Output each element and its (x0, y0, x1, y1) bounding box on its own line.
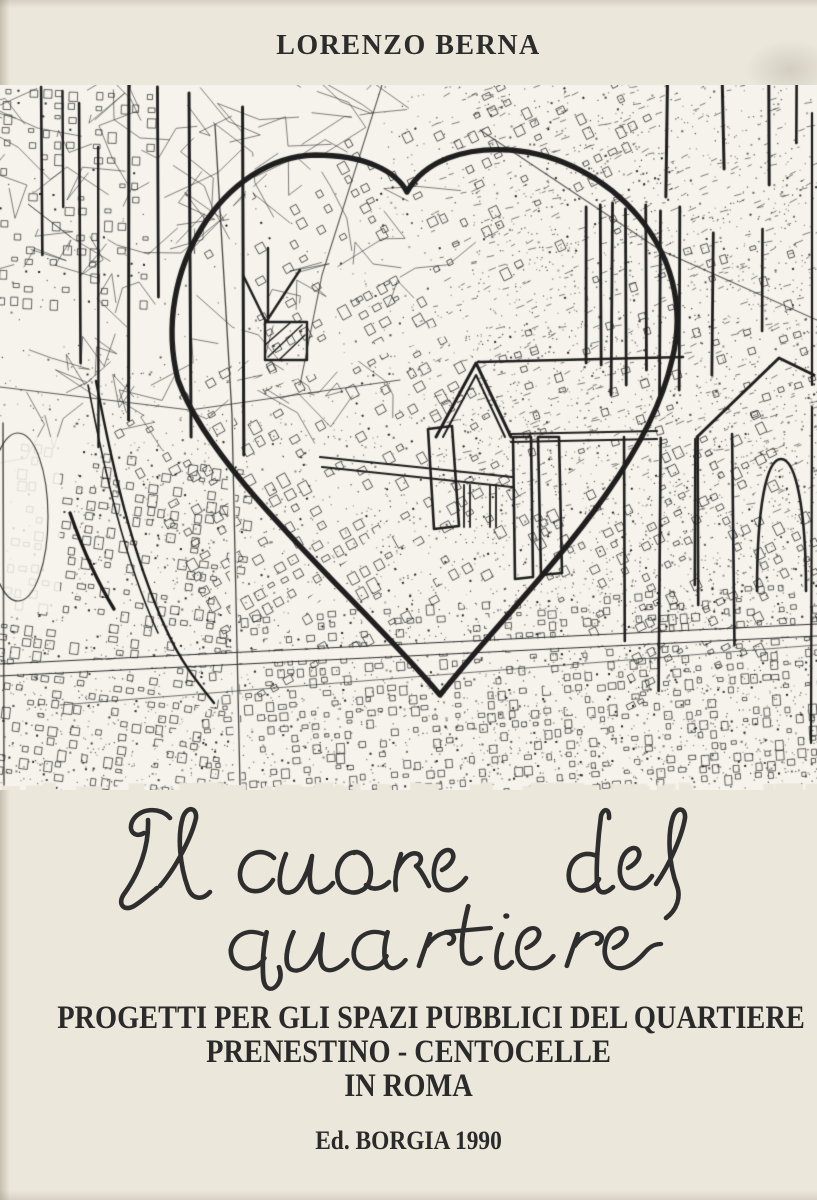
subtitle-line-3: IN ROMA (57, 1069, 760, 1103)
book-cover: LORENZO BERNA Il cuore del quartiere PRO… (0, 0, 817, 1200)
page-edge-shading-bottom (0, 1190, 817, 1200)
handwritten-title-text-line1: Il cuore del (0, 0, 1, 1)
publisher-line: Ed. BORGIA 1990 (41, 1126, 776, 1156)
author-name: LORENZO BERNA (0, 30, 817, 62)
subtitle: PROGETTI PER GLI SPAZI PUBBLICI DEL QUAR… (0, 1001, 817, 1103)
title-line1-strokes (121, 809, 685, 918)
i-dot (503, 913, 509, 919)
subtitle-line-2: PRENESTINO - CENTOCELLE (57, 1035, 760, 1069)
subtitle-line-1: PROGETTI PER GLI SPAZI PUBBLICI DEL QUAR… (57, 1001, 760, 1035)
handwritten-title (40, 798, 780, 1003)
map-heart-artwork (0, 85, 817, 790)
page-edge-shading-top (0, 0, 817, 8)
handwritten-title-text-line2: quartiere (0, 0, 1, 1)
title-line2-strokes (231, 906, 661, 989)
